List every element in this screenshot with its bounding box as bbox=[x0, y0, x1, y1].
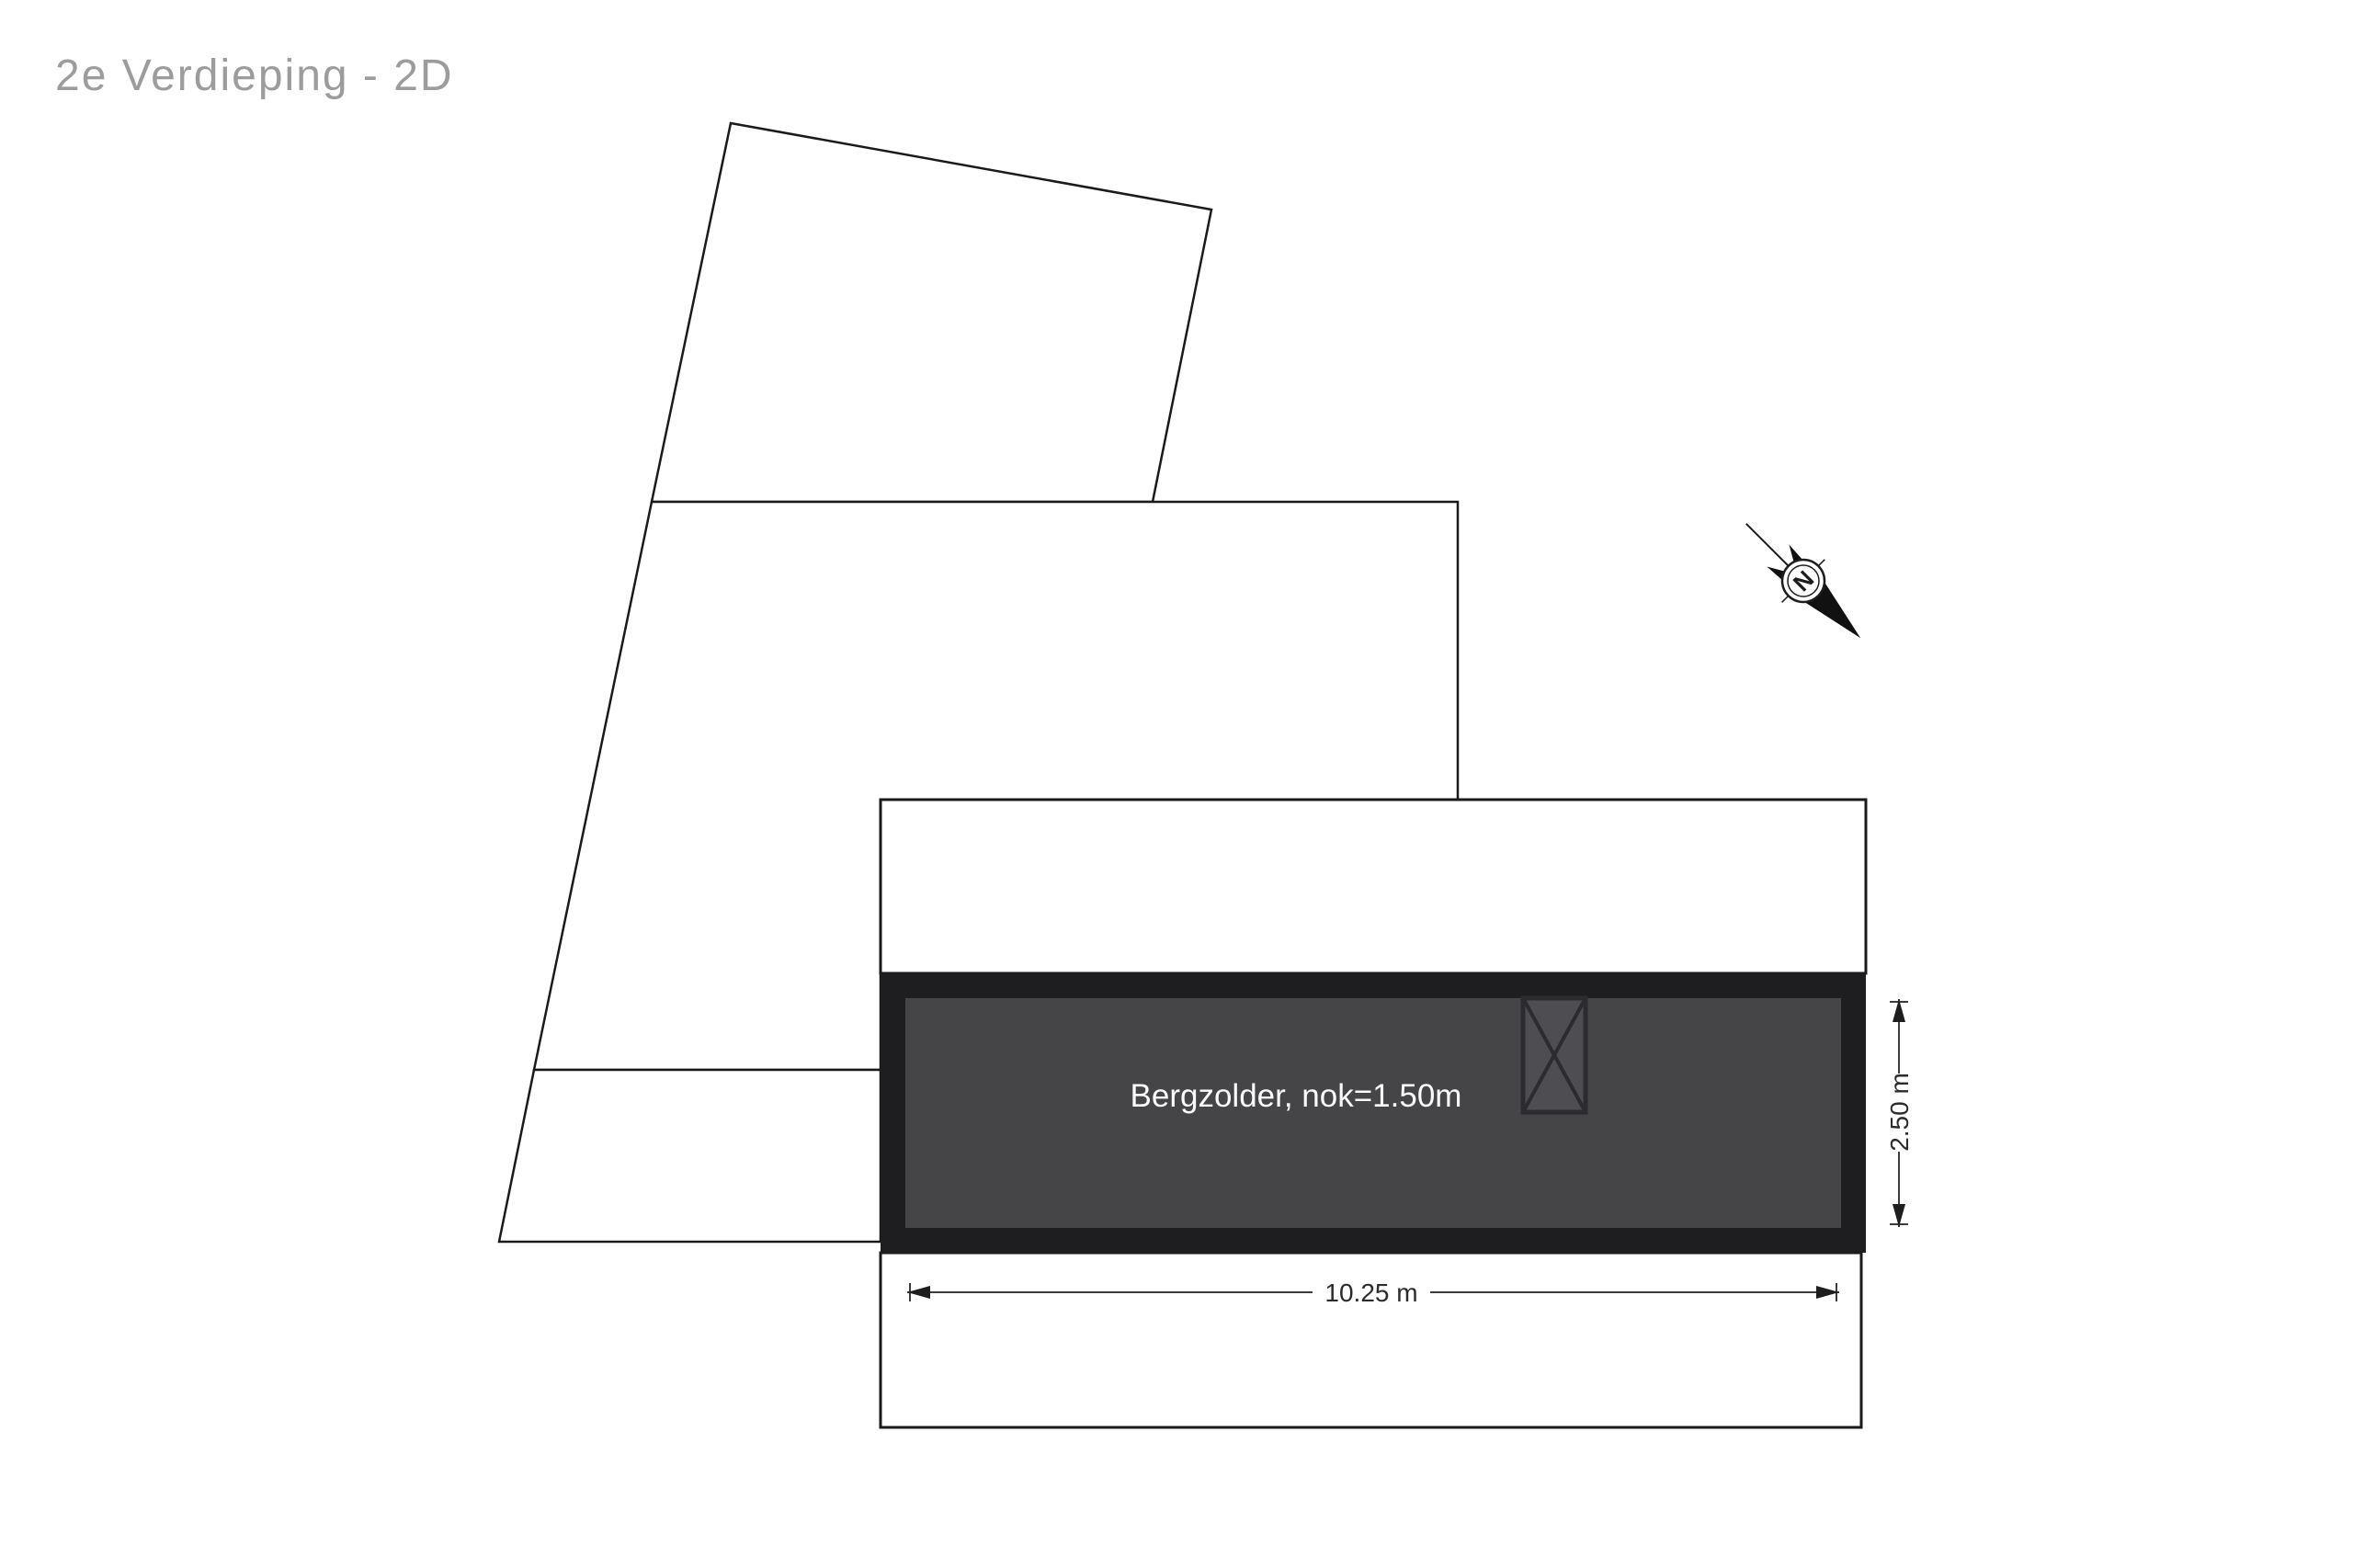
north-compass-icon: N bbox=[1724, 502, 1881, 659]
hatch-symbol bbox=[1523, 998, 1586, 1112]
room-bergzolder: Bergzolder, nok=1.50m bbox=[881, 973, 1866, 1253]
floorplan-page: 2e Verdieping - 2D Bergzolder, nok=1.50m bbox=[0, 0, 2353, 1568]
roof-outline-lower bbox=[499, 1070, 881, 1242]
room-label: Bergzolder, nok=1.50m bbox=[1131, 1078, 1462, 1114]
dimension-height: 2.50 m bbox=[1885, 999, 1914, 1227]
floorplan-canvas: 2e Verdieping - 2D Bergzolder, nok=1.50m bbox=[0, 0, 2353, 1568]
dimension-width-label: 10.25 m bbox=[1324, 1278, 1417, 1307]
roof-outline-upper bbox=[652, 123, 1211, 502]
page-title: 2e Verdieping - 2D bbox=[55, 51, 454, 100]
dimension-height-label: 2.50 m bbox=[1885, 1073, 1914, 1152]
roof-section-top bbox=[881, 800, 1866, 973]
